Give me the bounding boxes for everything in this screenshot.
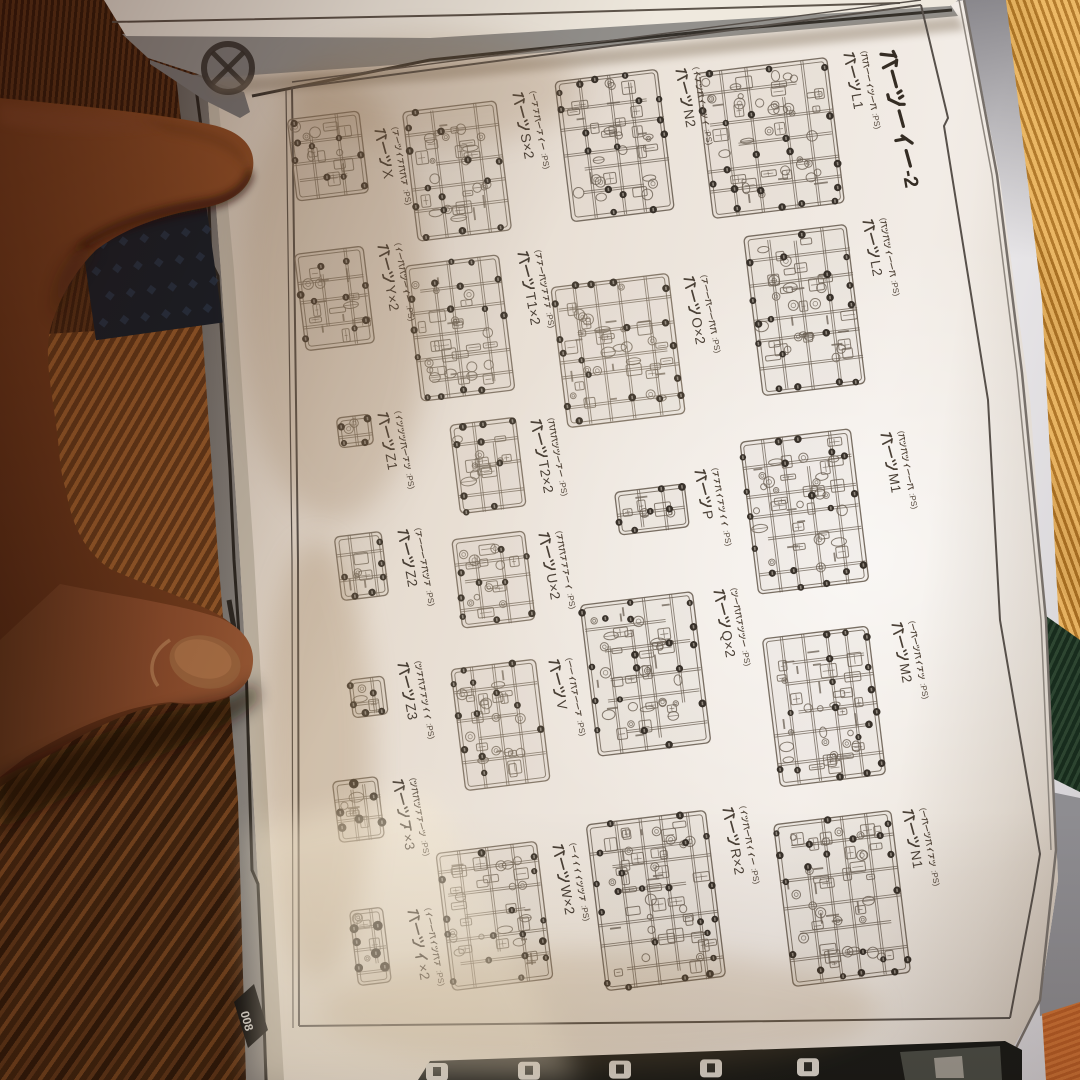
svg-text:R×2: R×2 bbox=[728, 847, 747, 876]
svg-text:(: ( bbox=[691, 66, 700, 71]
svg-text:(: ( bbox=[878, 217, 887, 222]
svg-text:(: ( bbox=[738, 805, 747, 810]
svg-text::PS): :PS) bbox=[544, 312, 556, 330]
svg-text:(: ( bbox=[710, 467, 719, 472]
svg-text::PS): :PS) bbox=[404, 473, 416, 491]
svg-text:(: ( bbox=[896, 430, 905, 435]
svg-text::PS): :PS) bbox=[721, 530, 733, 548]
svg-text::PS): :PS) bbox=[918, 683, 930, 701]
svg-text:M2: M2 bbox=[897, 662, 915, 684]
svg-text:T2×2: T2×2 bbox=[536, 459, 557, 495]
svg-text:N1: N1 bbox=[908, 849, 926, 870]
svg-text:(: ( bbox=[907, 620, 916, 625]
svg-text:(: ( bbox=[918, 807, 927, 812]
svg-text:S×2: S×2 bbox=[518, 132, 537, 160]
svg-text::PS): :PS) bbox=[565, 593, 577, 611]
svg-text:V: V bbox=[554, 699, 571, 711]
svg-text:(: ( bbox=[568, 842, 577, 847]
svg-text:(: ( bbox=[564, 657, 573, 662]
svg-text:L2: L2 bbox=[868, 259, 886, 278]
svg-text::PS): :PS) bbox=[424, 590, 436, 608]
svg-text:(: ( bbox=[546, 417, 555, 422]
svg-text::PS): :PS) bbox=[557, 480, 569, 498]
svg-text:P: P bbox=[700, 509, 716, 521]
svg-text:W×2: W×2 bbox=[558, 884, 578, 916]
svg-text:(: ( bbox=[859, 50, 868, 55]
svg-text:N2: N2 bbox=[681, 108, 699, 129]
svg-text:Z3: Z3 bbox=[403, 702, 421, 721]
svg-text:(: ( bbox=[699, 274, 708, 279]
svg-text:(: ( bbox=[413, 660, 422, 665]
svg-text:U×2: U×2 bbox=[544, 572, 563, 601]
svg-text::PS): :PS) bbox=[870, 113, 882, 131]
svg-text::PS): :PS) bbox=[539, 153, 551, 171]
svg-text::PS): :PS) bbox=[579, 905, 591, 923]
svg-text::PS): :PS) bbox=[710, 337, 722, 355]
svg-text:(: ( bbox=[554, 530, 563, 535]
svg-text:Q×2: Q×2 bbox=[719, 629, 739, 659]
svg-text:M1: M1 bbox=[886, 472, 904, 494]
svg-text:O×2: O×2 bbox=[689, 316, 709, 346]
svg-text:L1: L1 bbox=[849, 92, 867, 111]
svg-text:T1×2: T1×2 bbox=[523, 291, 544, 327]
svg-text::PS): :PS) bbox=[907, 493, 919, 511]
svg-text:Z2: Z2 bbox=[403, 569, 421, 588]
svg-text::PS): :PS) bbox=[889, 280, 901, 298]
svg-text:-2: -2 bbox=[898, 168, 923, 189]
svg-text:(: ( bbox=[413, 527, 422, 532]
svg-text::PS): :PS) bbox=[740, 650, 752, 668]
svg-text:(: ( bbox=[533, 249, 542, 254]
svg-text:(: ( bbox=[729, 587, 738, 592]
svg-text::PS): :PS) bbox=[929, 870, 941, 888]
svg-text::PS): :PS) bbox=[749, 868, 761, 886]
svg-text::PS): :PS) bbox=[575, 720, 587, 738]
svg-text::PS): :PS) bbox=[424, 723, 436, 741]
svg-text:(: ( bbox=[408, 777, 417, 782]
